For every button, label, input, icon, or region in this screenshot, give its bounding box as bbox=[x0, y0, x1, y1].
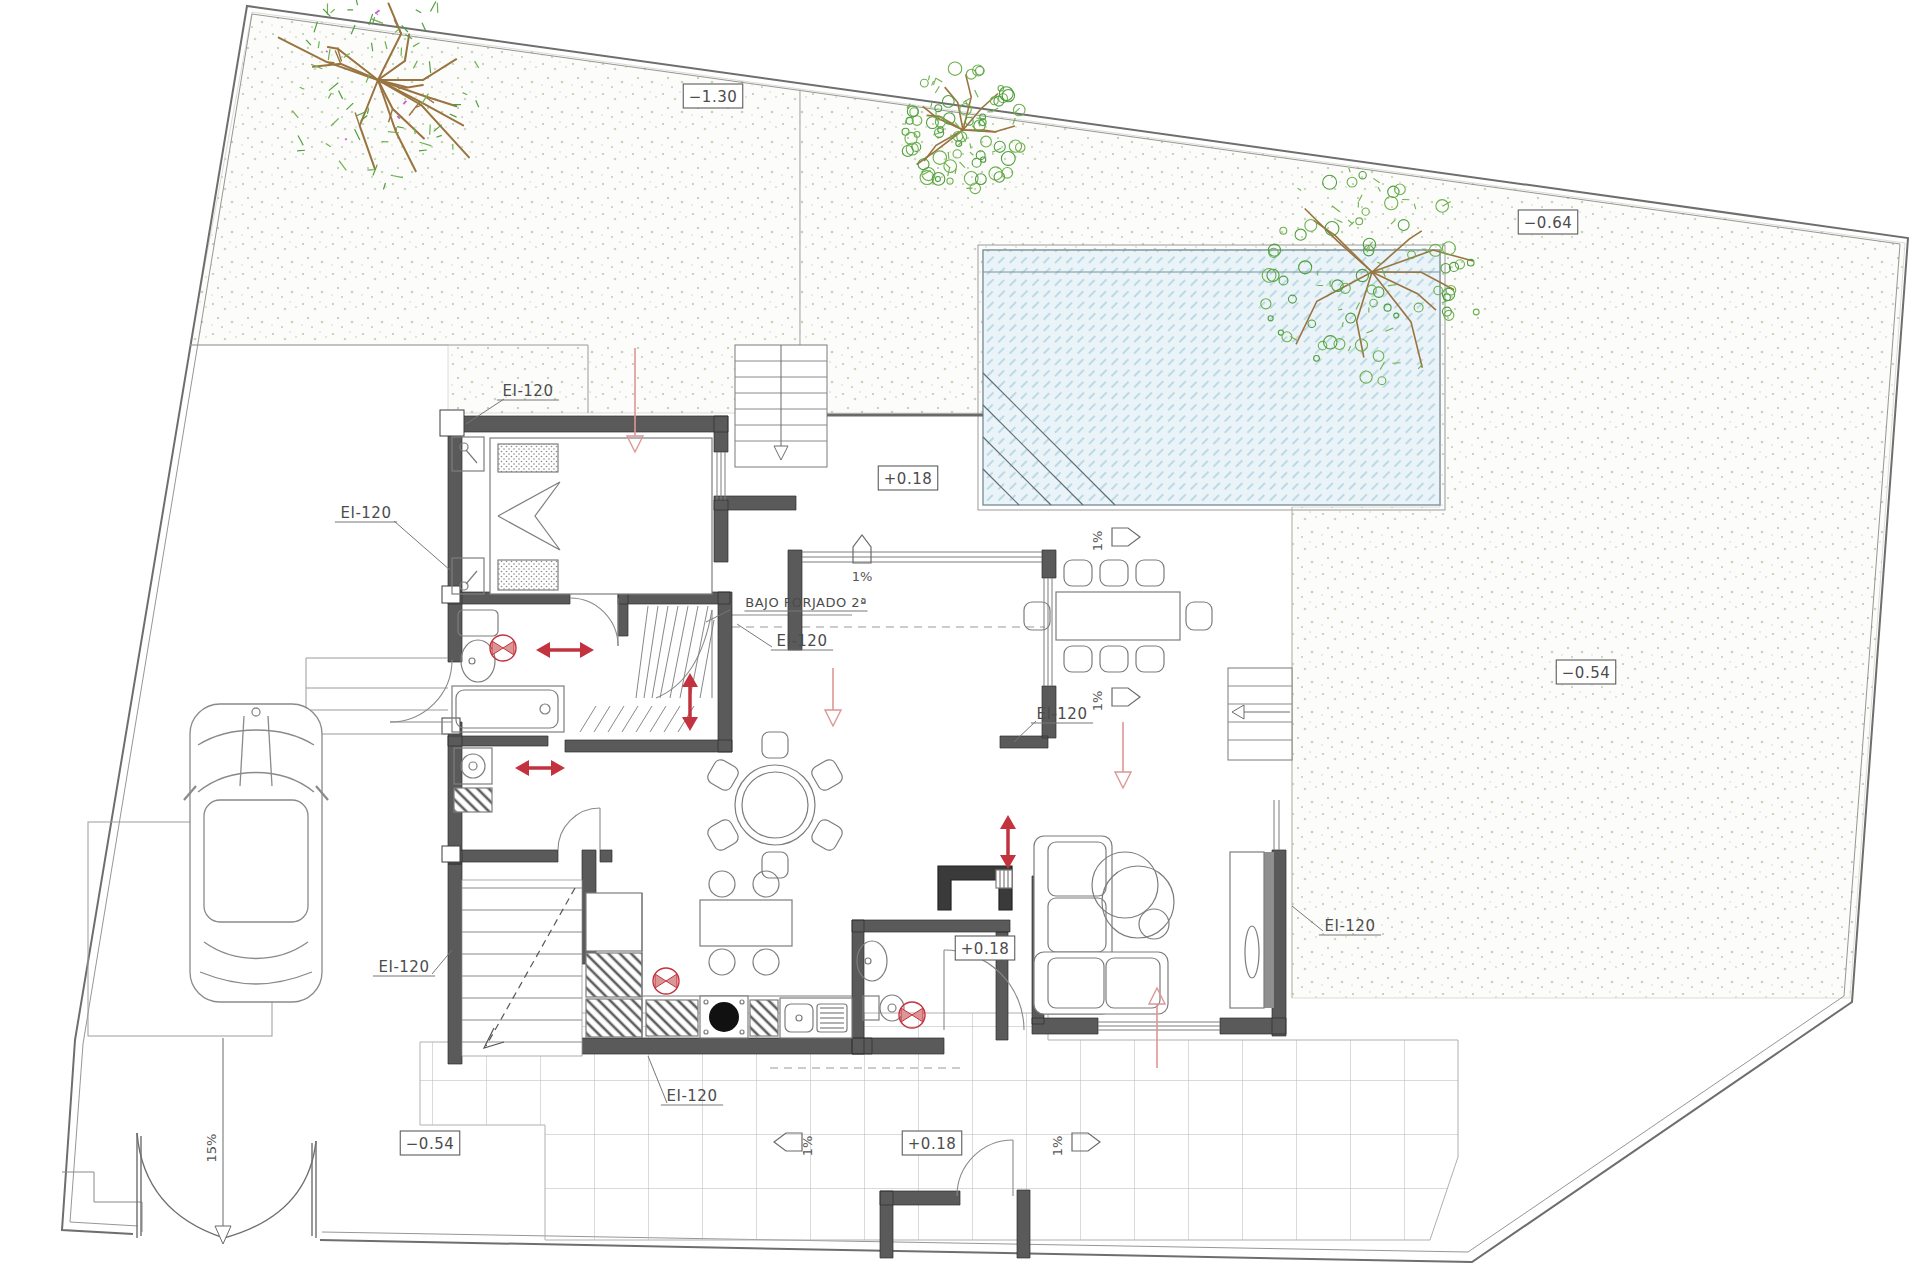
fire-rating-label: EI-120 bbox=[335, 504, 450, 570]
laundry-sink bbox=[454, 788, 492, 812]
round-dining-table bbox=[705, 732, 845, 878]
chair bbox=[1100, 560, 1128, 586]
living-south-window bbox=[1098, 1022, 1220, 1030]
chair bbox=[709, 871, 735, 897]
closet-hatch bbox=[580, 606, 714, 732]
svg-text:15%: 15% bbox=[204, 1134, 219, 1163]
stairs-interior bbox=[462, 880, 582, 1056]
kitchen-tall-unit bbox=[586, 893, 642, 951]
garden-top-left bbox=[190, 12, 800, 413]
extractor-fan-symbol bbox=[490, 635, 516, 661]
svg-text:−0.64: −0.64 bbox=[1524, 214, 1572, 232]
dining-north-window bbox=[802, 552, 1042, 562]
slope-arrow-down-long: 15% bbox=[204, 1038, 231, 1244]
chair bbox=[1136, 646, 1164, 672]
floor-plan-page: architectural site / ground floor plan bbox=[0, 0, 1920, 1280]
fireplace bbox=[938, 866, 1012, 910]
ventilation-double-arrow bbox=[515, 760, 565, 776]
entry-door-west bbox=[390, 660, 452, 722]
level-label: −0.64 bbox=[1518, 210, 1578, 234]
ventilation-double-arrow bbox=[1000, 815, 1016, 869]
slope-arrow-up: 1% bbox=[852, 535, 873, 584]
garden-right bbox=[800, 89, 1905, 998]
pillow bbox=[498, 560, 558, 590]
svg-text:EI-120: EI-120 bbox=[1325, 917, 1376, 935]
svg-text:+0.18: +0.18 bbox=[908, 1135, 956, 1153]
chair bbox=[1100, 646, 1128, 672]
level-label: +0.18 bbox=[955, 936, 1015, 960]
entry-steps-west bbox=[306, 658, 448, 746]
boundary-steps bbox=[62, 1172, 142, 1232]
level-label: −1.30 bbox=[683, 84, 743, 108]
svg-text:+0.18: +0.18 bbox=[961, 940, 1009, 958]
svg-text:1%: 1% bbox=[1090, 531, 1105, 552]
dining-east-window bbox=[1044, 578, 1052, 686]
chair bbox=[753, 949, 779, 975]
pool-water bbox=[983, 250, 1440, 505]
chair bbox=[709, 949, 735, 975]
svg-text:1%: 1% bbox=[1090, 691, 1105, 712]
chair bbox=[1024, 602, 1050, 630]
gate-leaf-right bbox=[224, 1141, 316, 1238]
stairs-exterior-right bbox=[1228, 668, 1292, 760]
ventilation-double-arrow bbox=[536, 642, 594, 658]
flow-arrow bbox=[825, 668, 841, 726]
bathroom-1 bbox=[452, 610, 564, 732]
swimming-pool bbox=[978, 245, 1445, 510]
svg-text:−0.54: −0.54 bbox=[1562, 664, 1610, 682]
pillow bbox=[498, 444, 558, 472]
slope-arrow-right: 1% bbox=[1090, 688, 1140, 711]
svg-text:−1.30: −1.30 bbox=[689, 88, 737, 106]
bedroom-east-window bbox=[717, 452, 725, 500]
svg-text:EI-120: EI-120 bbox=[379, 958, 430, 976]
svg-text:EI-120: EI-120 bbox=[503, 382, 554, 400]
fire-rating-label: EI-120 bbox=[737, 624, 833, 650]
outdoor-table bbox=[1056, 592, 1180, 640]
svg-text:EI-120: EI-120 bbox=[1037, 705, 1088, 723]
toilet bbox=[458, 610, 498, 636]
plan-svg: architectural site / ground floor plan bbox=[0, 0, 1920, 1280]
fire-rating-label: EI-120 bbox=[373, 950, 452, 976]
tall-cabinet bbox=[1230, 852, 1264, 1008]
laundry-door bbox=[558, 808, 600, 850]
svg-text:1%: 1% bbox=[800, 1136, 815, 1157]
kitchen-table bbox=[700, 900, 792, 946]
svg-text:−0.54: −0.54 bbox=[406, 1135, 454, 1153]
stairs-exterior-top bbox=[735, 345, 827, 467]
chair bbox=[753, 871, 779, 897]
level-label: −0.54 bbox=[400, 1131, 460, 1155]
svg-text:+0.18: +0.18 bbox=[884, 470, 932, 488]
kitchen bbox=[586, 871, 852, 1038]
entrance-gate bbox=[137, 1133, 316, 1238]
svg-text:1%: 1% bbox=[1050, 1136, 1065, 1157]
bathtub bbox=[452, 686, 564, 732]
car bbox=[184, 704, 328, 1002]
living-east-wall-hatch bbox=[1264, 852, 1274, 1008]
extractor-fan-symbol bbox=[653, 968, 679, 994]
living-east-window bbox=[1274, 800, 1279, 850]
chair bbox=[1064, 646, 1092, 672]
svg-text:EI-120: EI-120 bbox=[341, 504, 392, 522]
chair bbox=[1136, 560, 1164, 586]
svg-text:1%: 1% bbox=[852, 569, 873, 584]
flow-arrow bbox=[1115, 722, 1131, 788]
chair bbox=[1186, 602, 1212, 630]
svg-text:EI-120: EI-120 bbox=[667, 1087, 718, 1105]
slope-arrow-right: 1% bbox=[1090, 528, 1140, 551]
svg-text:EI-120: EI-120 bbox=[777, 632, 828, 650]
level-label: +0.18 bbox=[902, 1131, 962, 1155]
svg-text:BAJO FORJADO 2ª: BAJO FORJADO 2ª bbox=[745, 595, 867, 610]
bathroom-door bbox=[570, 598, 618, 646]
bed bbox=[452, 437, 712, 594]
level-label: −0.54 bbox=[1556, 660, 1616, 684]
level-label: +0.18 bbox=[878, 466, 938, 490]
chair bbox=[1064, 560, 1092, 586]
